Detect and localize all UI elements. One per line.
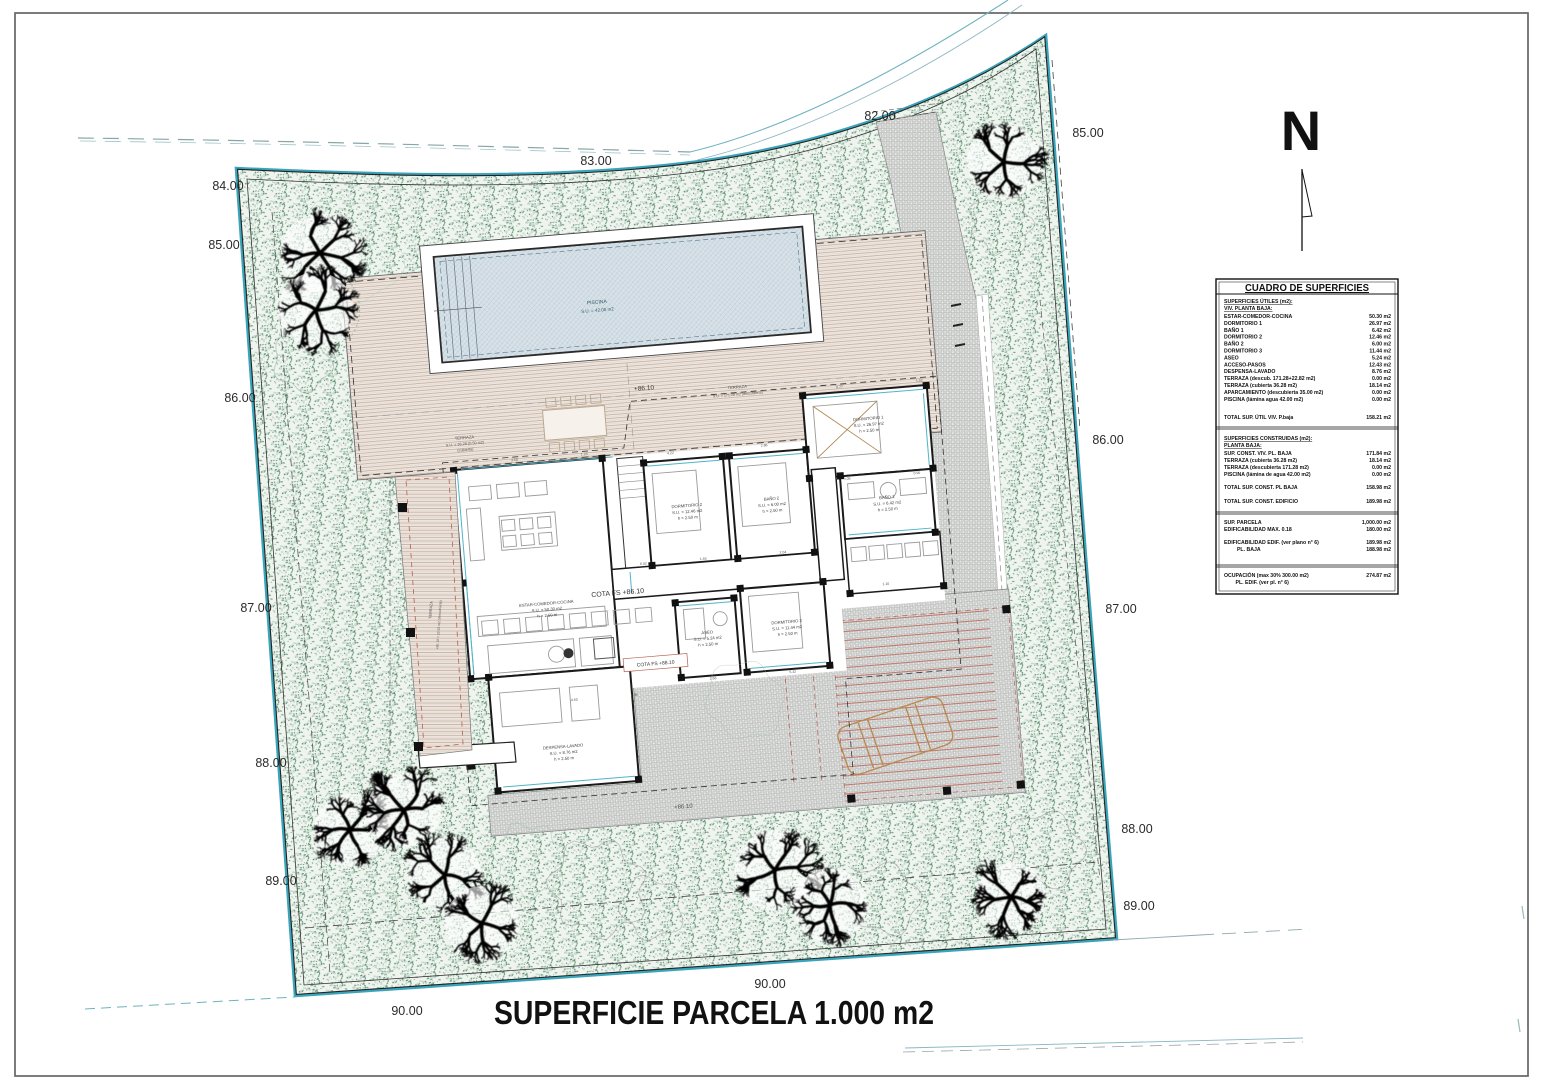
svg-text:0.00 m2: 0.00 m2 [1372,472,1391,478]
svg-text:DORMITORIO 2: DORMITORIO 2 [1224,335,1262,341]
svg-text:TERRAZA (cubierta 36.28 m2): TERRAZA (cubierta 36.28 m2) [1224,383,1297,389]
svg-text:ASEO: ASEO [1224,355,1239,361]
svg-text:PL. BAJA: PL. BAJA [1224,547,1261,553]
svg-text:6.00 m2: 6.00 m2 [1372,342,1391,348]
svg-text:ACCESO-PASOS: ACCESO-PASOS [1224,362,1266,368]
svg-text:SUPERFICIES ÚTILES (m2):: SUPERFICIES ÚTILES (m2): [1224,298,1293,305]
svg-text:50.30 m2: 50.30 m2 [1369,314,1391,320]
svg-text:18.14 m2: 18.14 m2 [1369,458,1391,464]
svg-text:26.97 m2: 26.97 m2 [1369,321,1391,327]
svg-text:1.45: 1.45 [700,557,707,562]
svg-text:86.00: 86.00 [1092,433,1123,447]
svg-text:PLANTA BAJA:: PLANTA BAJA: [1224,443,1262,449]
svg-text:1,000.00 m2: 1,000.00 m2 [1362,520,1391,526]
svg-text:TOTAL SUP. CONST. EDIFICIO: TOTAL SUP. CONST. EDIFICIO [1224,499,1298,505]
svg-text:6.02: 6.02 [640,562,647,567]
svg-text:12.46 m2: 12.46 m2 [1369,335,1391,341]
svg-text:0.00 m2: 0.00 m2 [1372,397,1391,403]
svg-text:189.98 m2: 189.98 m2 [1366,499,1391,505]
svg-text:4.50: 4.50 [571,698,578,703]
svg-text:APARCAMIENTO (descubierta 35.0: APARCAMIENTO (descubierta 35.00 m2) [1224,390,1324,396]
svg-text:TERRAZA (cubierta 36.28 m2): TERRAZA (cubierta 36.28 m2) [1224,458,1297,464]
svg-text:189.98 m2: 189.98 m2 [1366,540,1391,546]
svg-text:188.98 m2: 188.98 m2 [1366,547,1391,553]
svg-text:5.24 m2: 5.24 m2 [1372,355,1391,361]
svg-text:86.00: 86.00 [224,391,255,405]
svg-text:SUPERFICIE PARCELA 1.000 m2: SUPERFICIE PARCELA 1.000 m2 [494,994,934,1031]
svg-text:5.32: 5.32 [789,670,796,675]
svg-text:PL. EDIF. (ver pl. n° 6): PL. EDIF. (ver pl. n° 6) [1224,580,1289,586]
svg-text:84.00: 84.00 [212,179,243,193]
svg-text:6.42 m2: 6.42 m2 [1372,328,1391,334]
svg-text:2.66: 2.66 [709,676,716,681]
svg-text:TERRAZA (descubierta 171.28 m2: TERRAZA (descubierta 171.28 m2) [1224,465,1309,471]
svg-text:CUADRO DE SUPERFICIES: CUADRO DE SUPERFICIES [1245,283,1369,294]
svg-text:ESTAR-COMEDOR-COCINA: ESTAR-COMEDOR-COCINA [1224,314,1292,320]
svg-text:89.00: 89.00 [265,874,296,888]
svg-text:2.86: 2.86 [761,443,768,448]
svg-text:0.90: 0.90 [913,471,920,476]
svg-text:TOTAL SUP. CONST. PL BAJA: TOTAL SUP. CONST. PL BAJA [1224,485,1298,491]
svg-text:BAÑO 1: BAÑO 1 [1224,327,1244,334]
svg-text:88.00: 88.00 [255,756,286,770]
svg-text:0.00 m2: 0.00 m2 [1372,465,1391,471]
svg-text:158.98 m2: 158.98 m2 [1366,485,1391,491]
svg-text:PISCINA (lámina agua 42.00 m2): PISCINA (lámina agua 42.00 m2) [1224,397,1303,403]
svg-text:18.14 m2: 18.14 m2 [1369,383,1391,389]
svg-text:87.00: 87.00 [240,601,271,615]
svg-text:VIV. PLANTA BAJA:: VIV. PLANTA BAJA: [1224,306,1273,312]
svg-text:EDIFICABILIDAD EDIF. (ver plan: EDIFICABILIDAD EDIF. (ver plano n° 6) [1224,540,1319,546]
svg-text:83.00: 83.00 [580,154,611,168]
svg-text:90.00: 90.00 [391,1004,422,1018]
svg-text:DORMITORIO 1: DORMITORIO 1 [1224,321,1262,327]
svg-text:3.05: 3.05 [844,477,851,482]
svg-text:PISCINA (lámina de agua 42.00: PISCINA (lámina de agua 42.00 m2) [1224,472,1311,478]
svg-text:BAÑO 2: BAÑO 2 [1224,341,1244,348]
svg-text:88.00: 88.00 [1121,822,1152,836]
svg-text:0.00 m2: 0.00 m2 [1372,390,1391,396]
svg-text:1.23: 1.23 [581,452,588,457]
svg-text:TOTAL SUP. ÚTIL VIV. P.baja: TOTAL SUP. ÚTIL VIV. P.baja [1224,414,1293,421]
svg-text:8.76 m2: 8.76 m2 [1372,369,1391,375]
svg-text:12.43 m2: 12.43 m2 [1369,362,1391,368]
svg-text:DORMITORIO 3: DORMITORIO 3 [1224,349,1262,355]
svg-text:OCUPACIÓN (max 30% 300.00 m2): OCUPACIÓN (max 30% 300.00 m2) [1224,571,1309,579]
svg-text:EDIFICABILIDAD MAX. 0.18: EDIFICABILIDAD MAX. 0.18 [1224,527,1292,533]
svg-text:4.22: 4.22 [667,451,674,456]
svg-text:1.88: 1.88 [631,693,638,698]
svg-text:274.87 m2: 274.87 m2 [1366,573,1391,579]
svg-text:2.04: 2.04 [779,550,786,555]
svg-text:SUP. CONST. VIV. PL. BAJA: SUP. CONST. VIV. PL. BAJA [1224,451,1292,457]
svg-text:ASEO: ASEO [701,629,714,635]
svg-text:DESPENSA-LAVADO: DESPENSA-LAVADO [1224,369,1275,375]
svg-text:SUP. PARCELA: SUP. PARCELA [1224,520,1262,526]
svg-text:82.00: 82.00 [864,109,895,123]
svg-text:3.50: 3.50 [511,458,518,463]
svg-text:1.02: 1.02 [916,378,923,383]
svg-text:85.00: 85.00 [1072,126,1103,140]
svg-text:11.44 m2: 11.44 m2 [1369,349,1391,355]
svg-text:89.00: 89.00 [1123,899,1154,913]
svg-text:N: N [1281,99,1321,162]
svg-text:90.00: 90.00 [754,977,785,991]
svg-text:158.21 m2: 158.21 m2 [1366,415,1391,421]
svg-text:SUPERFICIES CONSTRUIDAS (m2):: SUPERFICIES CONSTRUIDAS (m2): [1224,436,1312,442]
svg-text:TERRAZA (descub. 171.28+22.82: TERRAZA (descub. 171.28+22.82 m2) [1224,376,1316,382]
svg-text:85.00: 85.00 [208,238,239,252]
svg-text:180.00 m2: 180.00 m2 [1366,527,1391,533]
svg-text:87.00: 87.00 [1105,602,1136,616]
svg-text:1.10: 1.10 [882,582,889,587]
svg-text:5.77: 5.77 [836,385,843,390]
svg-text:171.84 m2: 171.84 m2 [1366,451,1391,457]
svg-text:0.00 m2: 0.00 m2 [1372,376,1391,382]
